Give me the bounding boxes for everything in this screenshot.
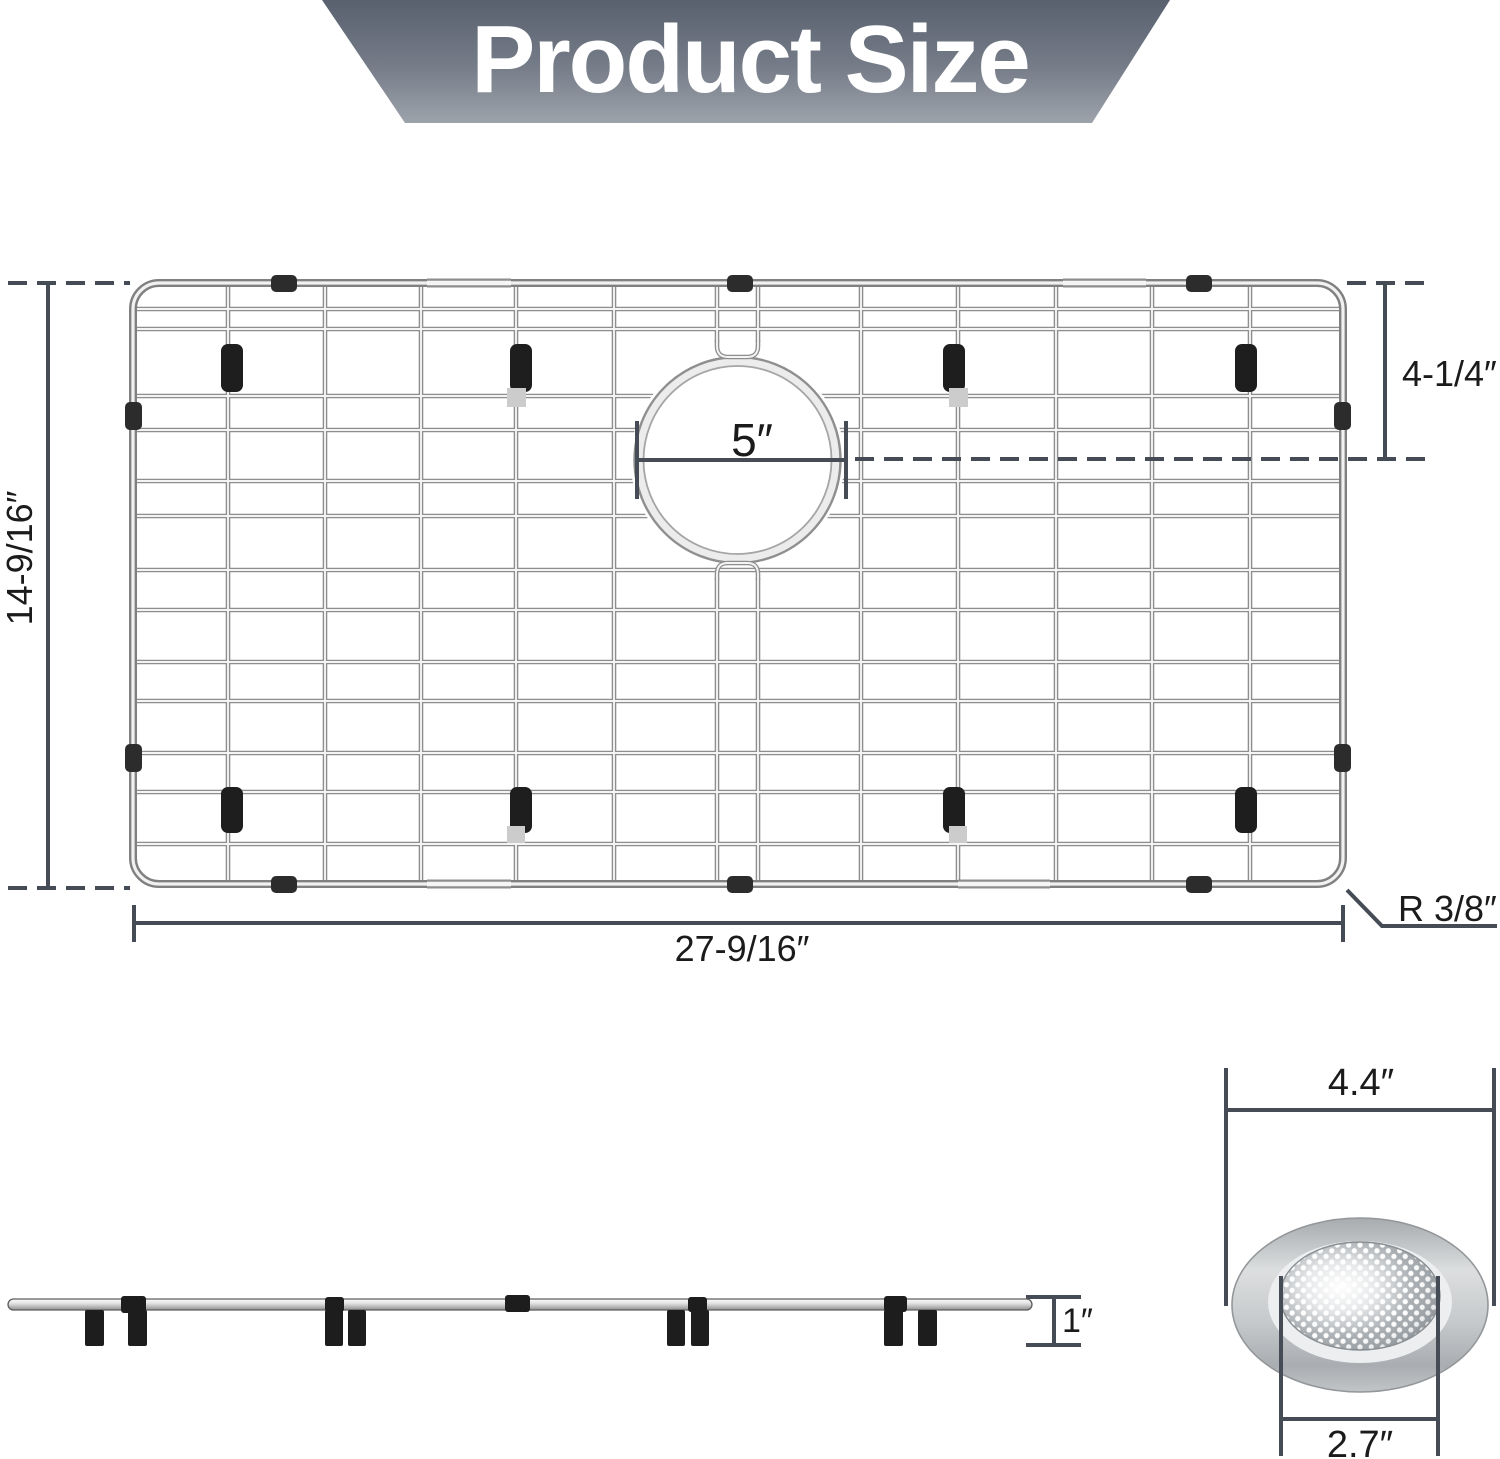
svg-text:27-9/16″: 27-9/16″ [675, 928, 810, 969]
svg-text:1″: 1″ [1062, 1302, 1093, 1340]
svg-text:5″: 5″ [731, 414, 773, 466]
svg-text:R 3/8″: R 3/8″ [1398, 888, 1497, 929]
svg-text:14-9/16″: 14-9/16″ [0, 490, 40, 625]
svg-text:4-1/4″: 4-1/4″ [1402, 353, 1497, 394]
svg-text:4.4″: 4.4″ [1328, 1062, 1394, 1104]
svg-text:Product Size: Product Size [471, 6, 1028, 113]
svg-text:2.7″: 2.7″ [1327, 1424, 1393, 1459]
